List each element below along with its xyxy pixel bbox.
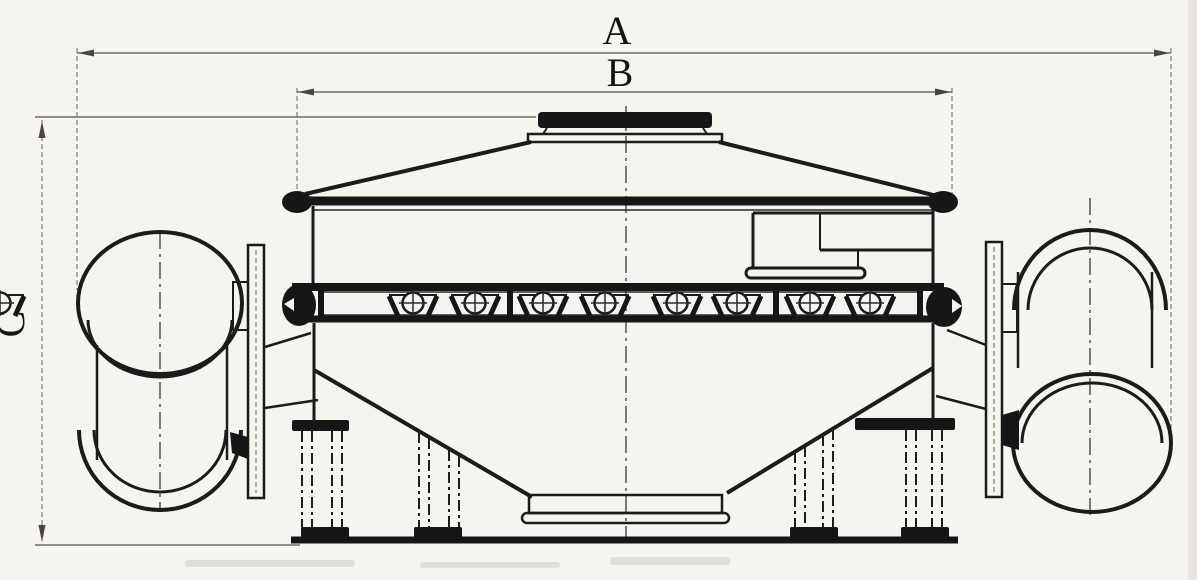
right-bracket-wedge xyxy=(1002,410,1019,450)
discharge-spout xyxy=(746,213,933,278)
smudge-2 xyxy=(420,562,560,568)
drawing-sheet: A B C xyxy=(0,0,1197,580)
hopper-slope-left xyxy=(314,370,532,497)
inlet-ring xyxy=(528,134,722,142)
clamp-bolt-8 xyxy=(846,290,894,316)
leg-foot-pad xyxy=(301,527,349,538)
band-post-1 xyxy=(318,290,324,318)
right-arm-upper xyxy=(947,330,986,345)
right-arm-lower xyxy=(936,396,986,409)
support-legs xyxy=(292,418,955,538)
leg-inner-right xyxy=(790,429,838,538)
lid-cone xyxy=(305,142,937,196)
clamp-bolt-2 xyxy=(451,290,499,316)
clamp-bolt-5 xyxy=(653,290,701,316)
dim-c-arrow-top xyxy=(39,121,46,138)
hopper-slope-right xyxy=(727,368,933,493)
right-suspension xyxy=(936,198,1171,520)
leg-foot-pad xyxy=(414,527,462,538)
inlet-flange-cap xyxy=(538,112,712,128)
clamp-bolt-4 xyxy=(581,290,629,316)
dim-b-arrow-right xyxy=(935,89,951,96)
smudge-3 xyxy=(610,557,730,565)
leg-foot-pad xyxy=(790,527,838,538)
clamp-band xyxy=(0,284,962,327)
technical-drawing-canvas: A B C xyxy=(0,0,1197,580)
lid-slope-left xyxy=(305,142,531,194)
left-suspension xyxy=(78,232,318,512)
dim-a-arrow-left xyxy=(78,50,94,57)
band-post-4 xyxy=(917,291,923,317)
lid-slope-right xyxy=(719,142,937,196)
left-arm-lower xyxy=(265,400,318,408)
inlet-port xyxy=(528,112,722,142)
dim-a-label: A xyxy=(603,8,632,53)
band-post-2 xyxy=(507,290,513,318)
right-cylinder-near-face xyxy=(1013,374,1171,512)
clamp-bolt-1 xyxy=(389,290,437,316)
scan-edge-right xyxy=(1188,0,1197,580)
dim-a-arrow-right xyxy=(1154,50,1170,57)
left-arm-upper xyxy=(265,333,311,347)
leg-outer-left xyxy=(292,420,349,538)
clamp-bolt-7 xyxy=(786,290,834,316)
leg-inner-left xyxy=(414,432,462,538)
right-cylinder-rim-arc xyxy=(1022,383,1162,443)
leg-outer-right xyxy=(855,418,955,538)
drum-body xyxy=(313,206,933,285)
clamp-bolt-3 xyxy=(519,290,567,316)
top-rim xyxy=(282,191,958,213)
leg-top-pad xyxy=(855,418,955,430)
leg-top-pad xyxy=(292,420,349,431)
leg-foot-pad xyxy=(901,527,949,538)
dimension-c: C xyxy=(0,117,536,545)
band-post-3 xyxy=(773,290,779,318)
clamp-bolt-6 xyxy=(713,290,761,316)
dim-c-arrow-bottom xyxy=(39,525,46,542)
left-bracket-wedge xyxy=(230,432,248,459)
top-rim-ear-left xyxy=(282,191,312,213)
spout-flange xyxy=(746,268,865,278)
dim-b-label: B xyxy=(607,50,634,95)
dim-b-arrow-left xyxy=(298,89,314,96)
smudge-1 xyxy=(185,560,355,567)
lower-hopper xyxy=(314,323,933,497)
